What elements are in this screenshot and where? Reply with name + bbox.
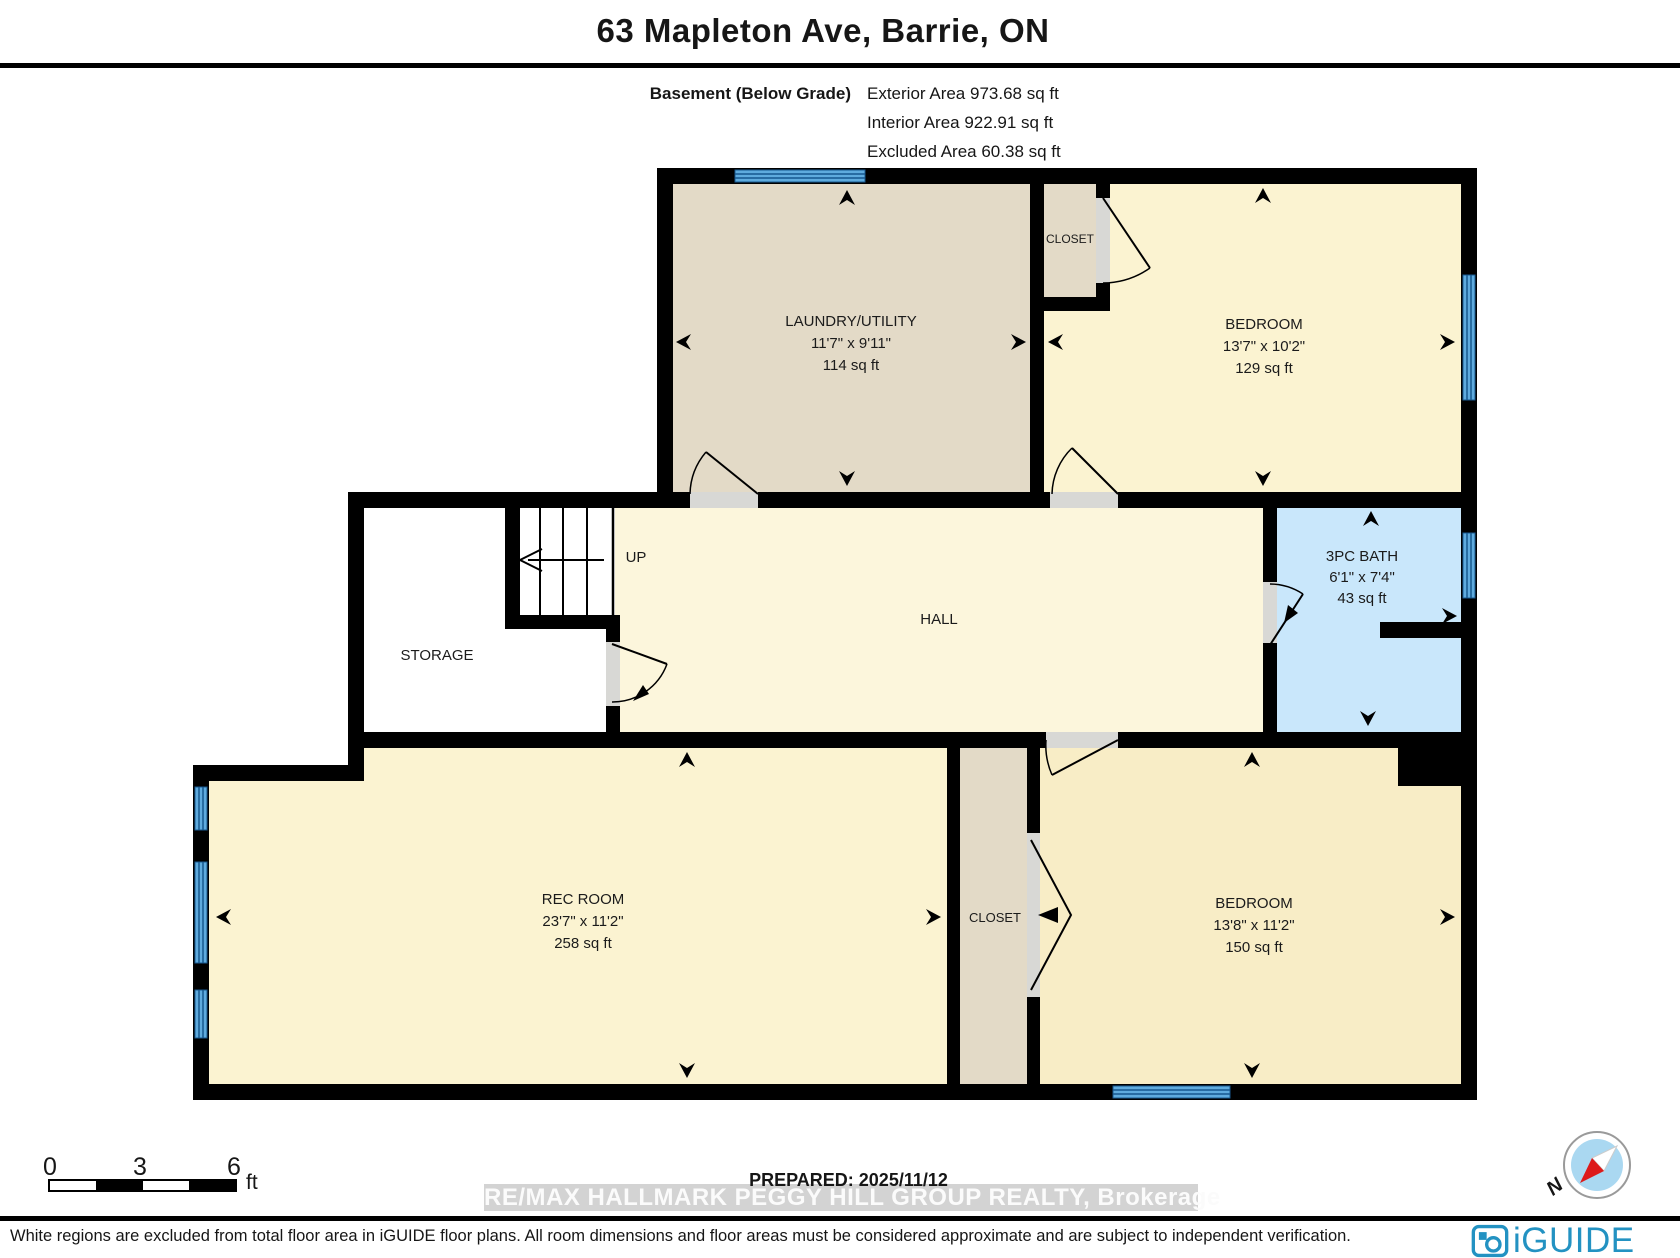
- room-label-storage: STORAGE: [287, 645, 587, 667]
- room-label-bedroom-top: BEDROOM 13'7" x 10'2" 129 sq ft: [1114, 314, 1414, 380]
- excluded-area: Excluded Area 60.38 sq ft: [867, 142, 1061, 162]
- iguide-logo-icon: [1470, 1223, 1510, 1258]
- stairs-up-label: UP: [586, 549, 686, 566]
- iguide-logo-text: iGUIDE: [1513, 1221, 1635, 1258]
- title-rule: [0, 63, 1680, 68]
- floor-label: Basement (Below Grade): [560, 84, 851, 104]
- interior-area: Interior Area 922.91 sq ft: [867, 113, 1053, 133]
- footer-disclaimer: White regions are excluded from total fl…: [10, 1227, 1465, 1246]
- footer-rule: [0, 1216, 1680, 1221]
- room-label-closet-bottom: CLOSET: [945, 910, 1045, 925]
- floor-plan-page: 63 Mapleton Ave, Barrie, ON Basement (Be…: [0, 0, 1680, 1258]
- room-label-closet-top: CLOSET: [1020, 232, 1120, 246]
- room-label-bath: 3PC BATH 6'1" x 7'4" 43 sq ft: [1212, 546, 1512, 609]
- room-label-laundry: LAUNDRY/UTILITY 11'7" x 9'11" 114 sq ft: [701, 311, 1001, 377]
- room-label-hall: HALL: [789, 609, 1089, 631]
- prepared-date: PREPARED: 2025/11/12: [17, 1170, 1680, 1191]
- room-label-rec-room: REC ROOM 23'7" x 11'2" 258 sq ft: [433, 889, 733, 955]
- iguide-logo: iGUIDE: [1470, 1221, 1635, 1258]
- exterior-area: Exterior Area 973.68 sq ft: [867, 84, 1059, 104]
- page-title: 63 Mapleton Ave, Barrie, ON: [0, 12, 1646, 50]
- room-label-bedroom-bottom: BEDROOM 13'8" x 11'2" 150 sq ft: [1104, 893, 1404, 959]
